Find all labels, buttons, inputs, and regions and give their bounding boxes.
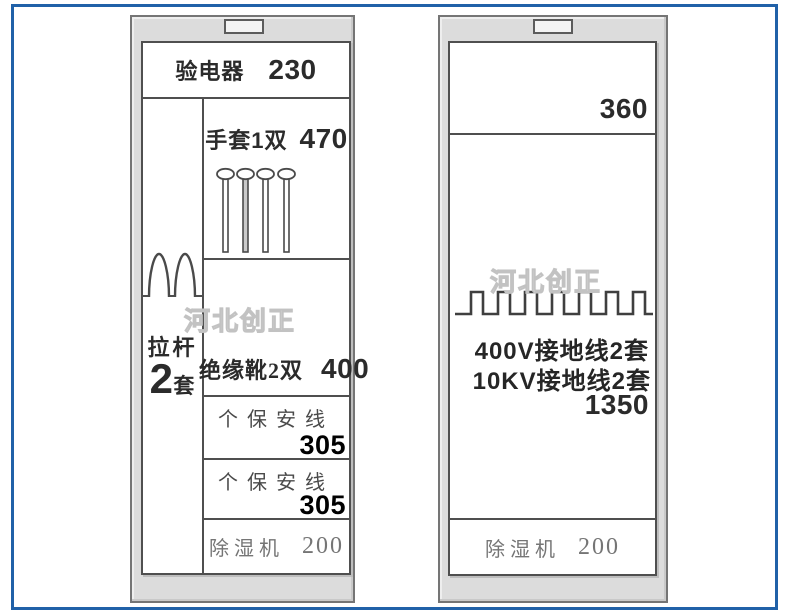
pull-rod-arches-icon (146, 251, 198, 297)
safety-line-label: 个保安线 (218, 403, 334, 432)
safety-line-height: 305 (299, 490, 346, 521)
dehumidifier-height: 200 (578, 534, 620, 561)
gloves-label: 手套1双 (205, 123, 287, 155)
cabinet-handle (224, 19, 264, 34)
dehumidifier-height: 200 (302, 533, 344, 560)
left-cabinet: 验电器 230 拉杆 2 套 手套1双 (130, 15, 355, 603)
dehumidifier-label: 除湿机 (485, 533, 560, 562)
right-cabinet: 360 河北创正 400V接地线2套 10KV接地线2套 1350 除湿机 20… (438, 15, 668, 603)
right-cabinet-door-panel: 360 河北创正 400V接地线2套 10KV接地线2套 1350 除湿机 20… (448, 41, 657, 576)
watermark: 河北创正 (184, 301, 296, 338)
left-cabinet-door-panel: 验电器 230 拉杆 2 套 手套1双 (141, 41, 351, 575)
safety-line-cell-1: 个保安线 305 (204, 397, 349, 458)
boots-label: 绝缘靴2双 (199, 353, 303, 385)
cabinet-handle (533, 19, 573, 34)
grounding-section-height-row: 1350 (450, 389, 655, 421)
shelf-divider (143, 97, 349, 99)
safety-line-cell-2: 个保安线 305 (204, 460, 349, 518)
dehumidifier-label: 除湿机 (209, 532, 284, 561)
boots-height: 400 (321, 353, 369, 385)
electroscope-label: 验电器 (175, 54, 244, 86)
electroscope-shelf: 验电器 230 (143, 43, 349, 97)
electroscope-height: 230 (268, 54, 316, 86)
dehumidifier-cell: 除湿机 200 (204, 520, 349, 573)
grounding-section-height: 1350 (585, 389, 649, 421)
top-shelf-divider (450, 133, 655, 135)
top-shelf: 360 (450, 93, 655, 125)
safety-line-height: 305 (299, 430, 346, 461)
hanging-pins-icon (216, 168, 296, 254)
gloves-divider (204, 258, 349, 260)
top-shelf-height: 360 (600, 93, 648, 125)
pull-rod-qty-unit: 套 (173, 370, 195, 400)
gloves-height: 470 (300, 123, 348, 155)
boots-shelf: 绝缘靴2双 400 (199, 353, 369, 385)
pull-rod-quantity: 2 套 (143, 355, 202, 403)
pull-rod-qty-number: 2 (150, 355, 174, 403)
gloves-shelf: 手套1双 470 (204, 123, 349, 155)
watermark: 河北创正 (490, 262, 602, 299)
dehumidifier-cell: 除湿机 200 (450, 520, 655, 574)
cabinet-layout-diagram: 验电器 230 拉杆 2 套 手套1双 (0, 0, 790, 615)
